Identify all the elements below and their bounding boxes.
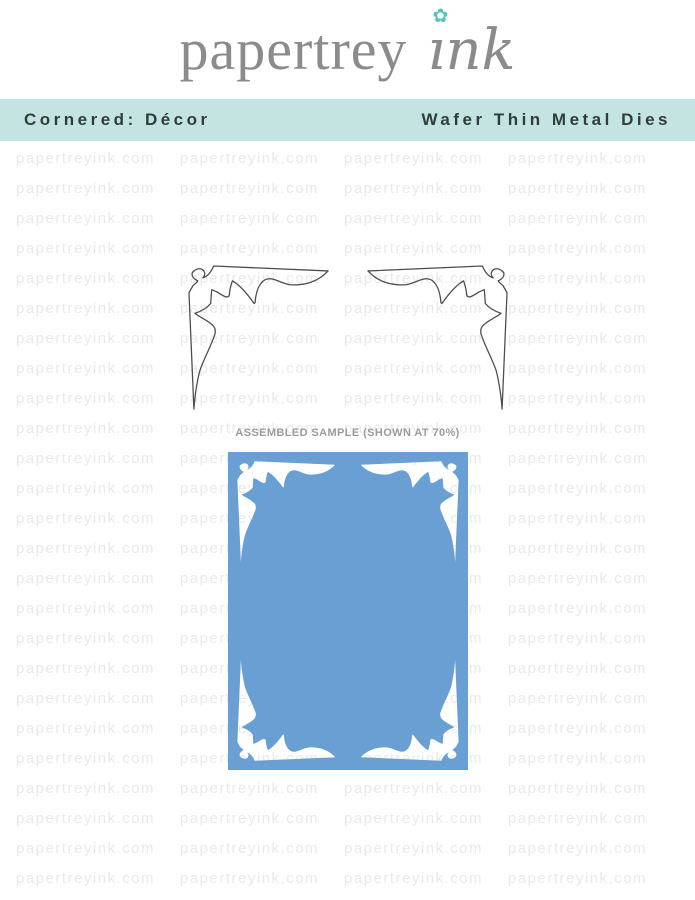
watermark-text: papertreyink.com	[16, 480, 155, 497]
watermark-text: papertreyink.com	[508, 600, 647, 617]
watermark-text: papertreyink.com	[16, 240, 155, 257]
watermark-text: papertreyink.com	[16, 540, 155, 557]
watermark-text: papertreyink.com	[508, 780, 647, 797]
corner-die-outline-left	[187, 263, 335, 419]
card-corner-ornament-bottom-right	[356, 653, 460, 763]
watermark-text: papertreyink.com	[180, 840, 319, 857]
watermark-text: papertreyink.com	[344, 840, 483, 857]
watermark-text: papertreyink.com	[508, 660, 647, 677]
card-corner-ornament-top-right	[356, 459, 460, 569]
papertrey-ink-logo: papertrey ✿ınk	[0, 10, 695, 98]
watermark-text: papertreyink.com	[16, 780, 155, 797]
watermark-text: papertreyink.com	[508, 840, 647, 857]
watermark-text: papertreyink.com	[508, 630, 647, 647]
watermark-text: papertreyink.com	[16, 660, 155, 677]
watermark-text: papertreyink.com	[16, 450, 155, 467]
watermark-text: papertreyink.com	[180, 240, 319, 257]
watermark-text: papertreyink.com	[508, 240, 647, 257]
watermark-text: papertreyink.com	[16, 210, 155, 227]
watermark-text: papertreyink.com	[508, 450, 647, 467]
watermark-text: papertreyink.com	[508, 150, 647, 167]
die-outlines	[0, 263, 695, 419]
watermark-text: papertreyink.com	[16, 150, 155, 167]
watermark-text: papertreyink.com	[180, 870, 319, 887]
assembled-sample-card	[228, 452, 468, 770]
watermark-text: papertreyink.com	[16, 600, 155, 617]
watermark-text: papertreyink.com	[16, 630, 155, 647]
watermark-text: papertreyink.com	[180, 150, 319, 167]
watermark-text: papertreyink.com	[344, 240, 483, 257]
watermark-text: papertreyink.com	[16, 510, 155, 527]
watermark-text: papertreyink.com	[16, 810, 155, 827]
watermark-text: papertreyink.com	[508, 870, 647, 887]
watermark-text: papertreyink.com	[180, 180, 319, 197]
watermark-text: papertreyink.com	[508, 570, 647, 587]
watermark-text: papertreyink.com	[16, 870, 155, 887]
card-corner-ornament-top-left	[236, 459, 340, 569]
product-category: Wafer Thin Metal Dies	[421, 110, 671, 130]
watermark-text: papertreyink.com	[16, 750, 155, 767]
corner-die-outline-right	[361, 263, 509, 419]
watermark-text: papertreyink.com	[180, 810, 319, 827]
watermark-text: papertreyink.com	[508, 810, 647, 827]
watermark-text: papertreyink.com	[16, 180, 155, 197]
watermark-text: papertreyink.com	[16, 690, 155, 707]
flower-icon: ✿	[433, 7, 449, 26]
watermark-text: papertreyink.com	[344, 210, 483, 227]
logo-text-ink: ✿ınk	[428, 11, 516, 91]
watermark-text: papertreyink.com	[508, 210, 647, 227]
watermark-text: papertreyink.com	[344, 150, 483, 167]
watermark-text: papertreyink.com	[508, 510, 647, 527]
watermark-text: papertreyink.com	[180, 210, 319, 227]
product-banner: Cornered: Décor Wafer Thin Metal Dies	[0, 99, 695, 141]
logo-ink-letters: ınk	[428, 18, 516, 83]
watermark-text: papertreyink.com	[344, 180, 483, 197]
watermark-text: papertreyink.com	[16, 570, 155, 587]
watermark-text: papertreyink.com	[508, 690, 647, 707]
watermark-text: papertreyink.com	[344, 780, 483, 797]
watermark-text: papertreyink.com	[508, 720, 647, 737]
watermark-text: papertreyink.com	[344, 810, 483, 827]
watermark-text: papertreyink.com	[508, 180, 647, 197]
watermark-text: papertreyink.com	[16, 840, 155, 857]
assembled-sample-caption: ASSEMBLED SAMPLE (SHOWN AT 70%)	[0, 427, 695, 439]
card-corner-ornament-bottom-left	[236, 653, 340, 763]
watermark-text: papertreyink.com	[180, 780, 319, 797]
watermark-text: papertreyink.com	[344, 870, 483, 887]
logo-text-papertrey: papertrey	[180, 10, 408, 90]
watermark-text: papertreyink.com	[16, 720, 155, 737]
watermark-text: papertreyink.com	[508, 480, 647, 497]
product-image-page: papertrey ✿ınk Cornered: Décor Wafer Thi…	[0, 0, 695, 900]
watermark-text: papertreyink.com	[508, 750, 647, 767]
product-name: Cornered: Décor	[24, 110, 211, 130]
watermark-text: papertreyink.com	[508, 540, 647, 557]
